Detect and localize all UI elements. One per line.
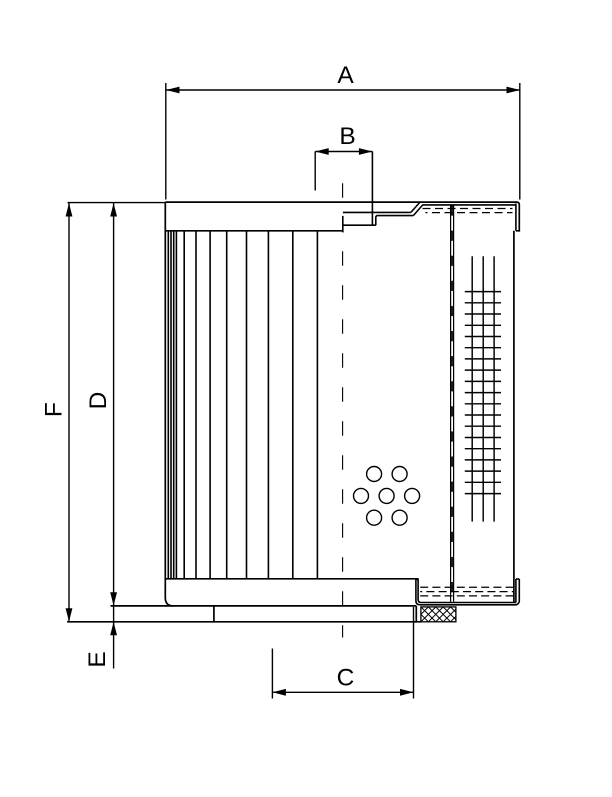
svg-text:D: D <box>85 392 112 410</box>
svg-text:B: B <box>339 123 355 150</box>
svg-text:F: F <box>41 402 68 417</box>
svg-text:C: C <box>337 665 355 692</box>
svg-text:A: A <box>337 62 354 89</box>
svg-text:E: E <box>84 651 111 667</box>
